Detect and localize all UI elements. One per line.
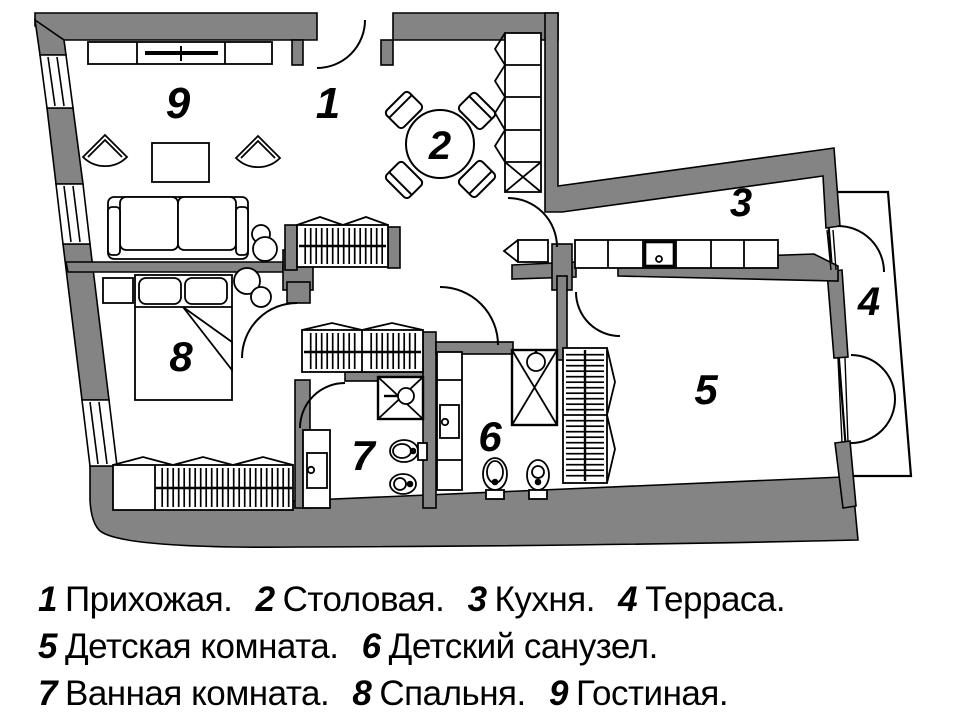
wardrobe-bedroom — [113, 457, 293, 510]
closet-room5 — [563, 348, 615, 483]
hall-closet — [297, 217, 388, 267]
label-room-9: 9 — [166, 79, 191, 128]
entry-jamb-left — [292, 40, 303, 65]
bidet-bath7 — [390, 474, 416, 494]
faucet — [308, 467, 314, 473]
dining-cabinet — [495, 33, 541, 192]
side-table-living — [252, 225, 277, 261]
shower-bath6 — [512, 350, 557, 425]
legend-item-7: 7Ванная комната. — [38, 674, 329, 713]
entry-jamb-right — [381, 40, 393, 65]
nightstand — [103, 278, 133, 303]
label-room-5: 5 — [694, 366, 718, 413]
faucet — [442, 419, 448, 425]
legend-line-1: 1Прихожая. 2Столовая. 3Кухня. 4Терраса. — [38, 576, 938, 623]
label-room-2: 2 — [428, 124, 451, 168]
legend-line-3: 7Ванная комната. 8Спальня. 9Гостиная. — [38, 670, 938, 717]
label-room-6: 6 — [478, 413, 502, 460]
bathroom7-fixtures — [302, 323, 427, 508]
legend-item-8: 8Спальня. — [352, 674, 525, 713]
wall-left-2 — [47, 108, 83, 184]
dining-furniture — [384, 33, 541, 200]
legend-item-6: 6Детский санузел. — [362, 627, 658, 666]
floor-plan-page: 9 1 2 3 4 5 6 7 8 1Прихожая. 2Столовая. … — [0, 0, 960, 720]
closet-post-right — [388, 227, 400, 268]
wall-8-7-upper — [287, 282, 310, 303]
pillow — [139, 278, 181, 304]
armchair-left — [83, 135, 127, 166]
legend-item-4: 4Терраса. — [618, 580, 785, 619]
legend: 1Прихожая. 2Столовая. 3Кухня. 4Терраса. … — [38, 576, 938, 717]
label-room-1: 1 — [316, 79, 340, 128]
wall-kitchen-north — [545, 13, 840, 228]
legend-item-9: 9Гостиная. — [549, 674, 728, 713]
toilet-bath7 — [390, 440, 427, 462]
closet-bath7 — [302, 323, 423, 372]
closet-post-left — [285, 225, 297, 270]
room8-door-arc — [242, 303, 297, 358]
legend-item-5: 5Детская комната. — [38, 627, 338, 666]
window-living-1 — [40, 55, 73, 108]
vanity-bath7 — [303, 430, 330, 508]
side-table-bedroom — [234, 268, 271, 307]
vanity-bath6 — [437, 352, 462, 490]
floor-plan-drawing: 9 1 2 3 4 5 6 7 8 — [0, 0, 960, 576]
room5-door-arc — [576, 292, 620, 336]
window-living-2 — [56, 184, 90, 244]
label-room-3: 3 — [730, 181, 752, 225]
bedroom-furniture — [103, 268, 293, 510]
entry-door-arc — [317, 20, 365, 68]
faucet — [656, 256, 662, 262]
shower-bath7 — [378, 377, 423, 419]
legend-item-1: 1Прихожая. — [38, 580, 232, 619]
label-room-7: 7 — [351, 432, 376, 479]
wall-cabinet — [88, 42, 272, 64]
label-room-8: 8 — [169, 333, 193, 380]
label-room-4: 4 — [857, 280, 880, 324]
sofa — [108, 197, 248, 259]
toilet-bath6 — [483, 458, 507, 499]
room6-door-arc — [440, 287, 498, 345]
wall-7-6 — [423, 332, 436, 508]
coffee-table — [152, 143, 209, 182]
living-room-furniture — [83, 42, 280, 261]
legend-item-3: 3Кухня. — [468, 580, 595, 619]
shower-head — [398, 388, 414, 404]
bathroom6-fixtures — [437, 348, 615, 499]
legend-line-2: 5Детская комната. 6Детский санузел. — [38, 623, 938, 670]
armchair-right — [236, 136, 280, 167]
shower-head — [527, 353, 545, 371]
fridge — [504, 240, 548, 262]
wall-top-left — [35, 13, 317, 40]
bidet-bath6 — [527, 460, 549, 499]
pillow — [185, 278, 227, 304]
kitchen-counter — [575, 240, 778, 268]
legend-item-2: 2Столовая. — [256, 580, 445, 619]
